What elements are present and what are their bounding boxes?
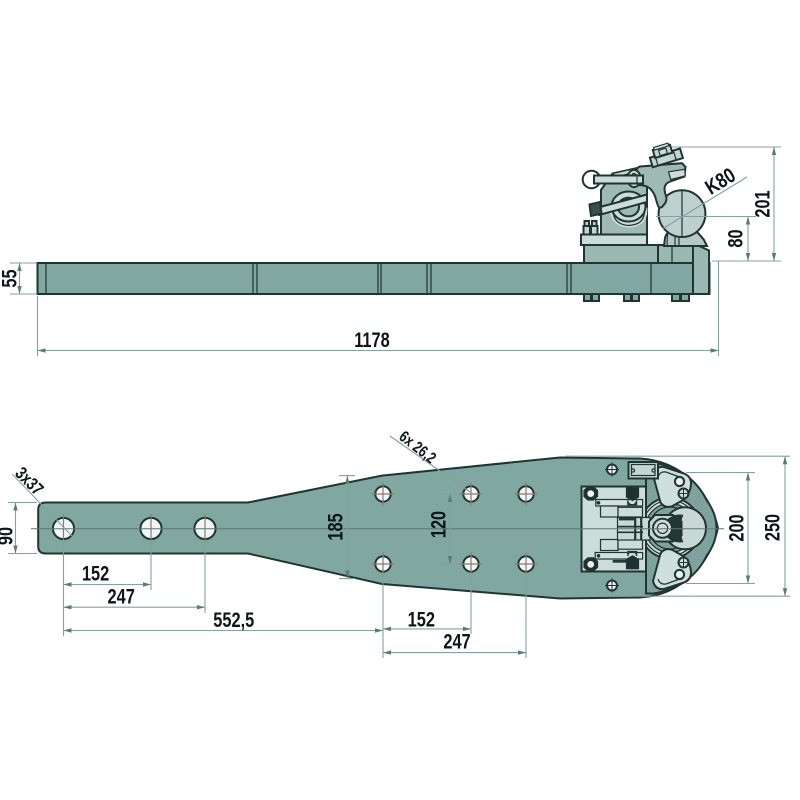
svg-text:247: 247 (443, 630, 470, 653)
svg-text:120: 120 (427, 511, 450, 538)
svg-text:185: 185 (324, 513, 347, 540)
svg-text:247: 247 (108, 585, 135, 608)
svg-text:152: 152 (82, 562, 109, 585)
svg-text:250: 250 (761, 514, 784, 541)
svg-text:552,5: 552,5 (213, 608, 254, 631)
svg-text:80: 80 (724, 229, 747, 247)
svg-text:90: 90 (0, 527, 17, 545)
svg-text:152: 152 (408, 608, 435, 631)
svg-text:200: 200 (725, 514, 748, 541)
svg-text:1178: 1178 (354, 328, 390, 351)
svg-text:55: 55 (0, 269, 21, 287)
svg-text:201: 201 (751, 190, 774, 217)
